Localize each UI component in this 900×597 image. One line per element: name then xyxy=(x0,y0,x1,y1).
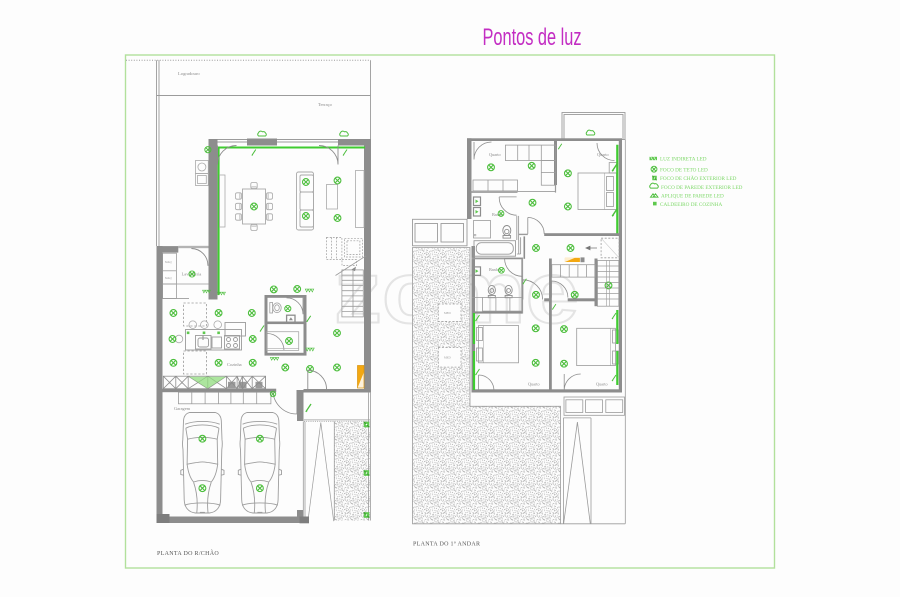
svg-text:Cozinha: Cozinha xyxy=(227,362,242,367)
svg-text:MED: MED xyxy=(444,356,452,360)
svg-text:CALDEEIRO DE COZINHA: CALDEEIRO DE COZINHA xyxy=(660,202,722,208)
svg-text:FOCO DE PAREDE EXTERIOR LED: FOCO DE PAREDE EXTERIOR LED xyxy=(661,185,743,191)
svg-text:Terraço: Terraço xyxy=(318,102,333,107)
svg-text:Garagem: Garagem xyxy=(174,406,191,411)
svg-text:FOCO DE TETO LED: FOCO DE TETO LED xyxy=(660,167,708,173)
svg-text:MAQ: MAQ xyxy=(165,277,172,280)
svg-text:APLIQUE DE PAREDE LED: APLIQUE DE PAREDE LED xyxy=(661,194,724,200)
svg-text:Quarto: Quarto xyxy=(528,382,540,387)
svg-text:MAQ: MAQ xyxy=(165,261,172,264)
svg-text:MED: MED xyxy=(444,311,452,315)
svg-text:FOCO DE CHÃO EXTERIOR LED: FOCO DE CHÃO EXTERIOR LED xyxy=(660,174,737,182)
svg-text:Quarto: Quarto xyxy=(489,152,501,157)
svg-text:Quarto: Quarto xyxy=(596,382,608,387)
svg-text:LUZ INDIRETA LED: LUZ INDIRETA LED xyxy=(660,157,707,163)
svg-text:PLANTA DO 1º ANDAR: PLANTA DO 1º ANDAR xyxy=(413,542,480,548)
svg-text:Pontos de luz: Pontos de luz xyxy=(483,24,582,51)
svg-text:Logradouro: Logradouro xyxy=(178,71,200,76)
svg-text:PLANTA DO R/CHÃO: PLANTA DO R/CHÃO xyxy=(157,549,219,557)
